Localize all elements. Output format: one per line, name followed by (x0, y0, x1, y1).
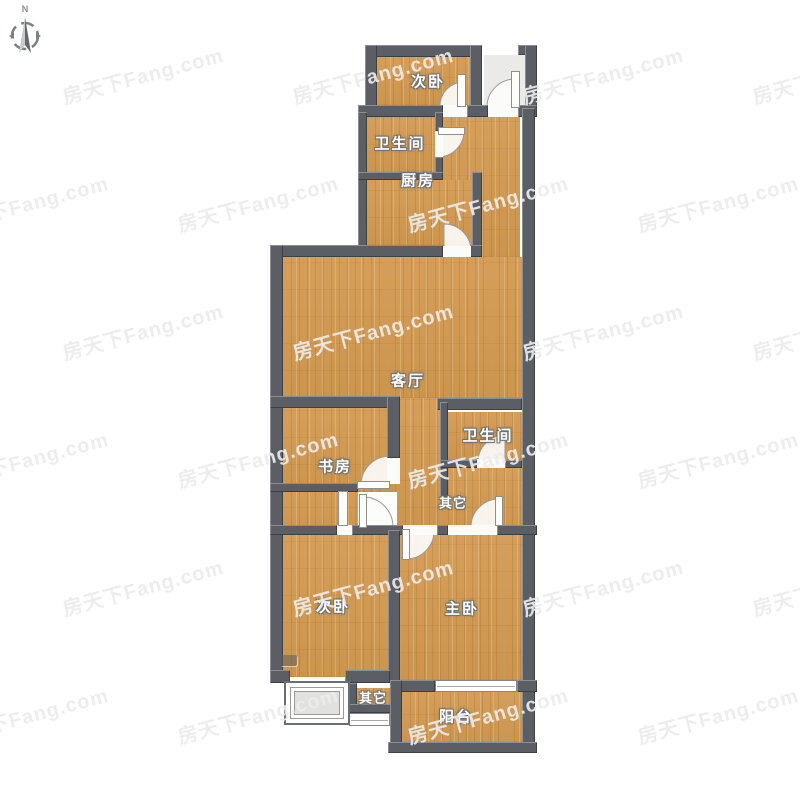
door-leaf-entry (511, 71, 520, 108)
room-label-other-bottom: 其它 (359, 688, 387, 707)
room-label-study: 书房 (318, 456, 352, 477)
room-label-bedroom-top: 次卧 (411, 71, 445, 92)
door-leaf-bedroom-left (338, 491, 348, 526)
small-furniture-mark (280, 655, 297, 666)
door-leaf-study (357, 481, 390, 489)
room-label-balcony: 阳台 (439, 706, 473, 727)
room-label-master-bedroom: 主卧 (445, 598, 479, 619)
room-label-other-mid: 其它 (439, 493, 467, 512)
door-gap-bedroom-left (337, 525, 352, 535)
door-gap-bathroom-mid (477, 459, 505, 468)
door-gap-storage (448, 525, 497, 535)
room-label-bathroom-mid: 卫生间 (462, 425, 513, 446)
bay-window-frame (290, 687, 344, 719)
floor-plan: 次卧 卫生间 厨房 客厅 书房 卫生间 其它 次卧 主卧 其它 阳台 N 房天下… (0, 0, 800, 800)
compass-icon: N (6, 2, 44, 60)
door-leaf-storage (495, 496, 503, 526)
room-label-living-room: 客厅 (391, 370, 425, 391)
door-gap-kitchen (443, 246, 471, 257)
bay-window-sill (294, 691, 340, 715)
compass-north-letter: N (22, 4, 29, 14)
door-leaf-bathroom-top (438, 127, 465, 135)
door-leaf-pocket (359, 494, 367, 528)
fittings-layer (0, 0, 800, 800)
door-leaf-master (402, 529, 410, 560)
room-label-bedroom-left: 次卧 (316, 596, 350, 617)
window-master-balcony (435, 680, 517, 692)
room-label-kitchen: 厨房 (401, 170, 435, 191)
room-label-bathroom-top: 卫生间 (374, 133, 425, 154)
door-leaf-bedroom-top (457, 74, 466, 107)
bay-window (284, 681, 350, 725)
window-vestibule (349, 713, 390, 726)
